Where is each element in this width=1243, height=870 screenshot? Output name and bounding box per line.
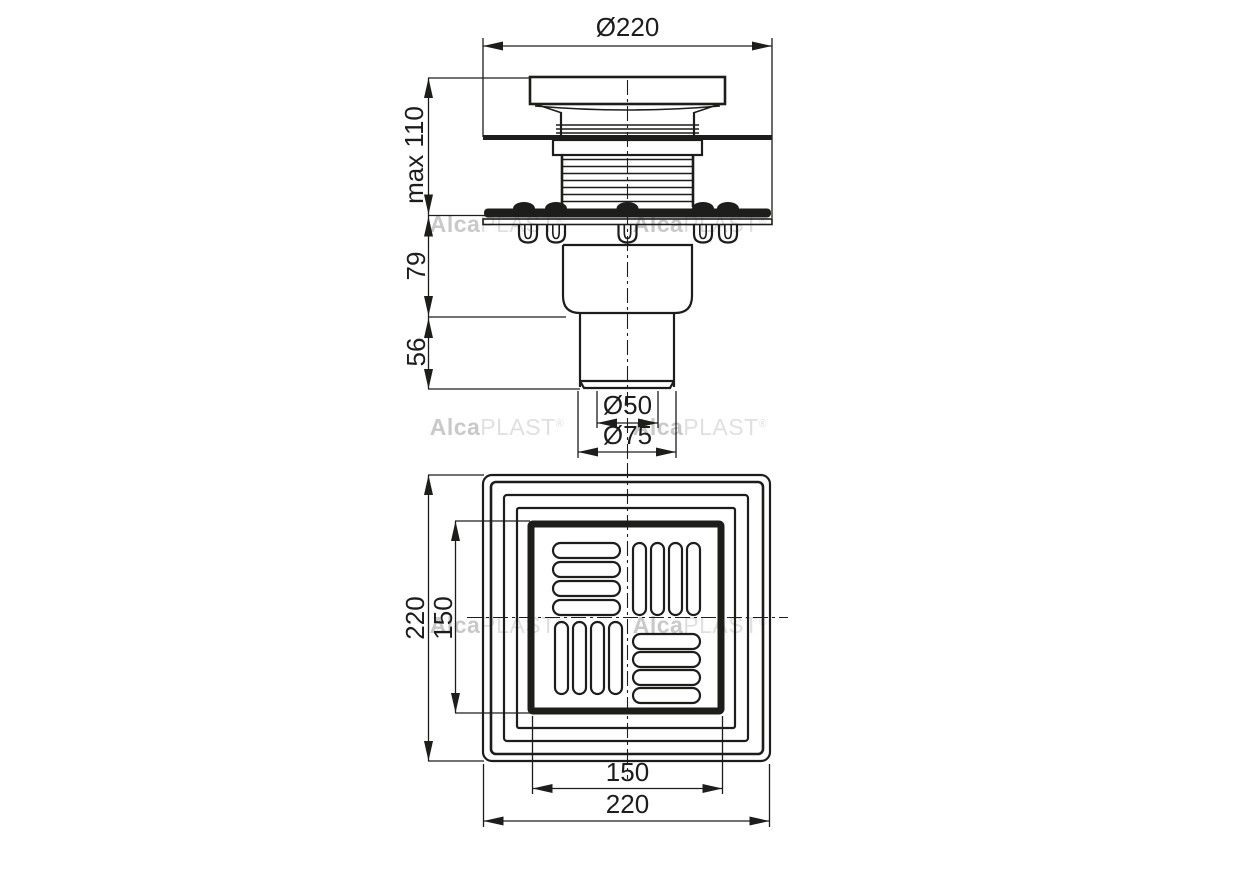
arrowhead-down — [451, 693, 460, 713]
arrowhead-up — [424, 475, 433, 495]
arrowhead-right — [752, 42, 772, 51]
arrowhead-left — [484, 817, 504, 826]
arrowhead-up — [424, 318, 433, 338]
grate-slot — [633, 652, 700, 667]
grate-slot — [553, 581, 620, 596]
grate-slot — [553, 600, 620, 615]
arrowhead-right — [703, 784, 723, 793]
grate-slot — [591, 622, 604, 694]
arrowhead-left — [533, 784, 553, 793]
arrowhead-left — [483, 42, 503, 51]
grate-slot — [687, 543, 700, 615]
flange-bolt-dome — [545, 202, 567, 215]
dim-label-max-height: max 110 — [399, 106, 429, 204]
dim-label-bottom-inner: 150 — [606, 757, 649, 787]
dim-label-top-width: Ø220 — [596, 12, 660, 42]
grate-slot — [573, 622, 586, 694]
dim-label-mid-height: 79 — [401, 252, 431, 281]
watermark-text: AlcaPLAST® — [633, 414, 768, 440]
dimension-plan-bottom: 150 220 — [484, 716, 770, 827]
grate-slot — [669, 543, 682, 615]
watermark-layer: AlcaPLAST® AlcaPLAST® AlcaPLAST® AlcaPLA… — [430, 211, 768, 638]
grate-slot — [633, 670, 700, 685]
arrowhead-up — [424, 78, 433, 98]
arrowhead-down — [424, 741, 433, 761]
arrowhead-down — [424, 296, 433, 316]
grate-slot — [633, 543, 646, 615]
grate-slot — [553, 543, 620, 558]
flange-bolt-dome — [692, 202, 714, 215]
dim-label-left-outer: 220 — [400, 596, 430, 639]
watermark-text: AlcaPLAST® — [430, 414, 565, 440]
flange-bolt-dome — [513, 202, 535, 215]
arrowhead-up — [451, 521, 460, 541]
side-view: Ø220 max 110 79 56 — [399, 12, 772, 462]
flange-bolt-dome — [717, 202, 739, 215]
grate-slot — [553, 562, 620, 577]
arrowhead-down — [424, 369, 433, 389]
plan-view: 220 150 150 220 — [400, 463, 788, 827]
grate-slot — [651, 543, 664, 615]
grate-slot — [555, 622, 568, 694]
grate-slot — [633, 688, 700, 703]
arrowhead-right — [656, 448, 676, 457]
dim-label-outlet-height: 56 — [401, 338, 431, 367]
dim-label-left-inner: 150 — [428, 596, 458, 639]
grate-slot — [609, 622, 622, 694]
dim-label-outlet-inner: Ø50 — [603, 390, 652, 420]
floor-drain-technical-drawing: AlcaPLAST® AlcaPLAST® AlcaPLAST® AlcaPLA… — [0, 0, 1243, 870]
dim-label-outlet-outer: Ø75 — [603, 420, 652, 450]
arrowhead-left — [578, 448, 598, 457]
dim-label-bottom-outer: 220 — [606, 789, 649, 819]
arrowhead-right — [750, 817, 770, 826]
drawing-canvas: AlcaPLAST® AlcaPLAST® AlcaPLAST® AlcaPLA… — [0, 0, 1243, 870]
